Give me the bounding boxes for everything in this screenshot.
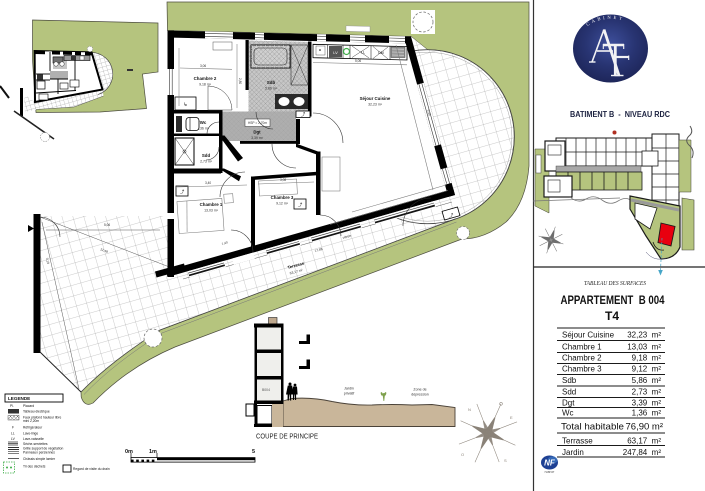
svg-text:5,06: 5,06 [104, 223, 110, 227]
svg-text:9,18 m²: 9,18 m² [632, 354, 662, 363]
svg-text:DM: DM [378, 51, 384, 55]
svg-text:Regard de visite du drain: Regard de visite du drain [73, 467, 110, 471]
svg-text:LEGENDE: LEGENDE [8, 396, 30, 401]
svg-text:Tri des déchets: Tri des déchets [23, 465, 46, 469]
svg-text:NF: NF [544, 459, 556, 468]
svg-text:Pl.: Pl. [10, 404, 14, 408]
svg-text:13,03 m²: 13,03 m² [204, 209, 219, 213]
svg-text:5,86 m²: 5,86 m² [265, 87, 278, 91]
svg-text:S: S [504, 458, 507, 463]
svg-text:247,84 m²: 247,84 m² [623, 448, 662, 457]
svg-text:Lave-vaisselle: Lave-vaisselle [23, 437, 44, 441]
svg-text:Zone de: Zone de [413, 388, 426, 392]
svg-text:9,12 m²: 9,12 m² [632, 365, 662, 374]
svg-text:Total habitable: Total habitable [561, 422, 624, 433]
svg-text:Panneaux persiennes: Panneaux persiennes [23, 451, 55, 455]
svg-text:Lave-linge: Lave-linge [23, 432, 38, 436]
svg-text:Terrasse: Terrasse [562, 437, 593, 446]
svg-text:5,86 m²: 5,86 m² [632, 376, 662, 385]
svg-text:LL: LL [11, 432, 15, 436]
svg-text:E: E [510, 415, 513, 420]
svg-text:HABITAT: HABITAT [545, 471, 555, 474]
svg-text:privatif: privatif [344, 392, 355, 396]
svg-text:Jardin: Jardin [344, 387, 354, 391]
svg-text:HSP = 2,70m: HSP = 2,70m [248, 121, 267, 125]
svg-text:⤴: ⤴ [180, 189, 185, 195]
svg-text:⤴: ⤴ [449, 212, 454, 218]
svg-text:3,39 m²: 3,39 m² [632, 399, 662, 408]
svg-text:Réfrigérateur: Réfrigérateur [23, 426, 43, 430]
svg-text:Sdd: Sdd [202, 153, 211, 158]
svg-text:Chambre 2: Chambre 2 [194, 76, 217, 81]
svg-text:3,40: 3,40 [205, 181, 211, 185]
svg-text:⤴: ⤴ [298, 202, 303, 208]
svg-text:Chambre 1: Chambre 1 [200, 202, 223, 207]
svg-text:O: O [461, 452, 464, 457]
svg-text:APPARTEMENT B 004: APPARTEMENT B 004 [561, 293, 665, 307]
svg-text:Châssis simple lamier: Châssis simple lamier [23, 457, 56, 461]
svg-text:Sdb: Sdb [562, 376, 577, 385]
svg-text:Wc: Wc [200, 120, 207, 125]
svg-text:1m: 1m [149, 449, 157, 455]
svg-text:dépression: dépression [411, 393, 429, 397]
svg-text:Jardin: Jardin [562, 448, 584, 457]
svg-text:Wc: Wc [562, 409, 574, 418]
svg-text:Dgt: Dgt [562, 399, 575, 408]
svg-text:Chambre 2: Chambre 2 [562, 354, 602, 363]
svg-text:32,23 m²: 32,23 m² [368, 103, 383, 107]
svg-text:2,80: 2,80 [238, 78, 242, 84]
svg-text:1,36 m²: 1,36 m² [632, 409, 662, 418]
svg-text:Séjour Cuisine: Séjour Cuisine [360, 96, 391, 101]
svg-text:Chambre 3: Chambre 3 [562, 365, 602, 374]
svg-text:LV: LV [333, 50, 338, 55]
svg-text:63,17 m²: 63,17 m² [627, 437, 661, 446]
svg-text:N: N [468, 407, 471, 412]
svg-text:3,08: 3,08 [280, 178, 286, 182]
svg-text:Sdd: Sdd [562, 388, 576, 397]
svg-text:Sdb: Sdb [267, 80, 276, 85]
svg-text:↳: ↳ [183, 102, 187, 108]
svg-text:BATIMENT B - NIVEAU RDC: BATIMENT B - NIVEAU RDC [570, 110, 670, 119]
svg-text:Tableau électrique: Tableau électrique [23, 409, 50, 413]
svg-text:76,90 m²: 76,90 m² [626, 422, 664, 433]
svg-text:Chambre 3: Chambre 3 [271, 195, 294, 200]
svg-text:3,39 m²: 3,39 m² [251, 136, 264, 140]
svg-text:B004: B004 [262, 388, 270, 392]
svg-text:F: F [12, 426, 14, 430]
svg-text:Séjour Cuisine: Séjour Cuisine [562, 331, 615, 340]
svg-text:2,73 m²: 2,73 m² [632, 388, 662, 397]
svg-text:COUPE DE PRINCIPE: COUPE DE PRINCIPE [256, 432, 318, 441]
svg-text:0m: 0m [125, 449, 133, 455]
svg-text:T4: T4 [605, 309, 619, 323]
svg-text:5: 5 [252, 449, 255, 455]
svg-text:13,03 m²: 13,03 m² [627, 343, 661, 352]
svg-text:mini 2,20m: mini 2,20m [23, 419, 39, 423]
svg-text:3,06: 3,06 [200, 64, 206, 68]
svg-text:Sèche-serviettes: Sèche-serviettes [23, 442, 48, 446]
svg-text:9,12 m²: 9,12 m² [276, 202, 289, 206]
svg-text:5,06: 5,06 [355, 59, 361, 63]
svg-text:⤴: ⤴ [301, 111, 306, 117]
svg-text:Dgt: Dgt [253, 130, 261, 135]
svg-text:32,23 m²: 32,23 m² [627, 331, 661, 340]
svg-text:TABLEAU DES SURFACES: TABLEAU DES SURFACES [584, 281, 646, 287]
svg-text:LL: LL [361, 51, 365, 55]
svg-text:Chambre 1: Chambre 1 [562, 343, 602, 352]
svg-text:Placard: Placard [23, 404, 34, 408]
